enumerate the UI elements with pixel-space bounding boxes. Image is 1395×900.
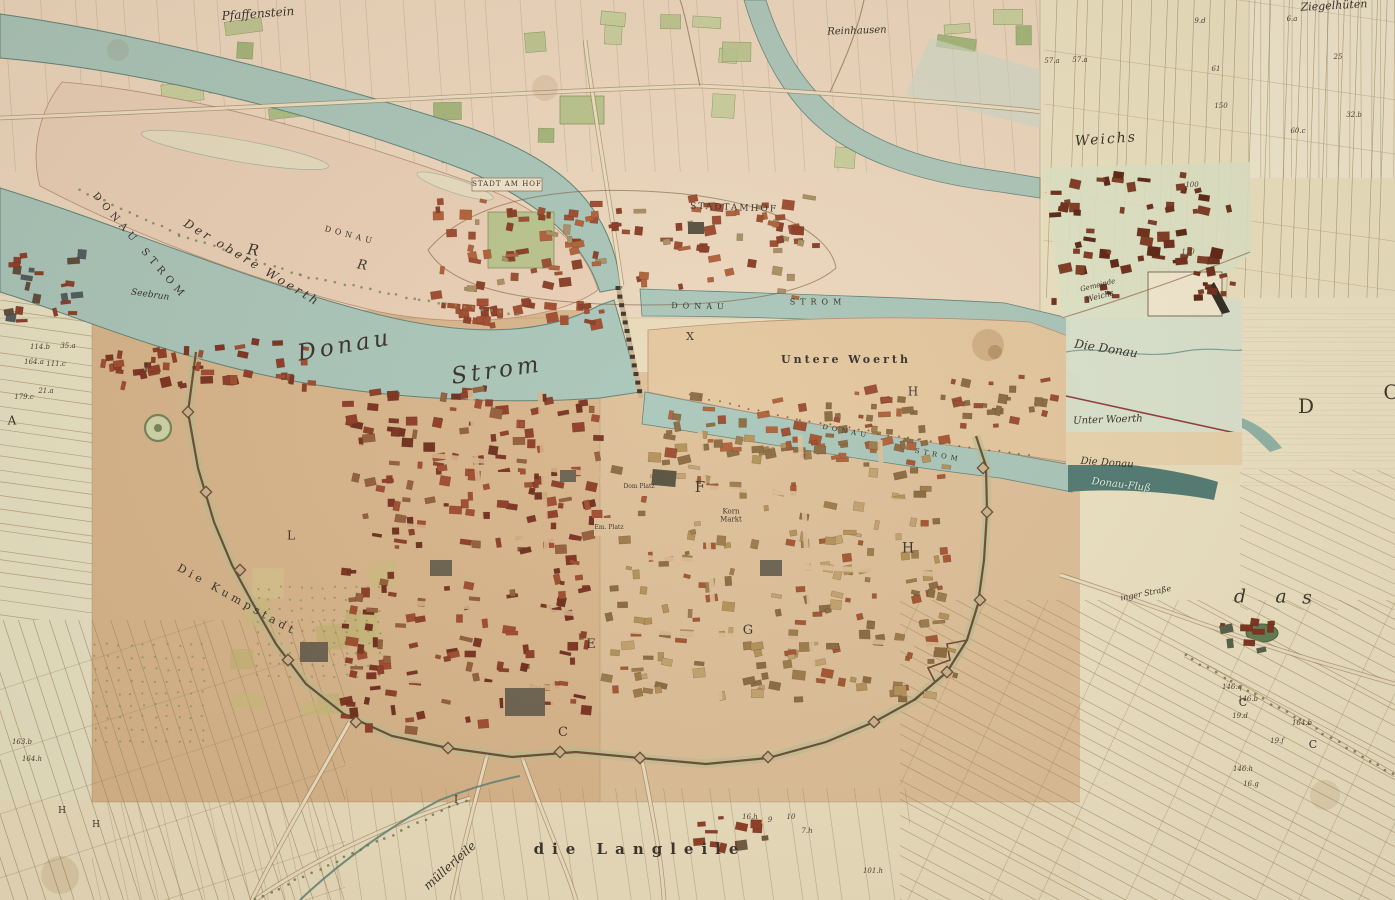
dom-platz-square — [622, 478, 656, 496]
cathedral-block — [651, 469, 676, 487]
unter-woerth-strip — [1066, 432, 1242, 465]
stadtamhof-church — [688, 222, 704, 234]
fort-core — [154, 424, 162, 432]
church-block-east — [760, 560, 782, 576]
map-drawing — [0, 0, 1395, 900]
cloister-block — [300, 642, 328, 662]
haid-platz-square — [492, 472, 520, 488]
korn-markt-square — [712, 504, 752, 530]
abbey-block — [505, 688, 545, 716]
stadt-am-hof-plaque — [472, 178, 542, 191]
map-canvas[interactable]: DonauStromDONAU STROMDer obere WoerthSee… — [0, 0, 1395, 900]
em-platz-square — [594, 518, 624, 536]
church-block-west — [430, 560, 452, 576]
town-hall-block — [560, 470, 576, 482]
